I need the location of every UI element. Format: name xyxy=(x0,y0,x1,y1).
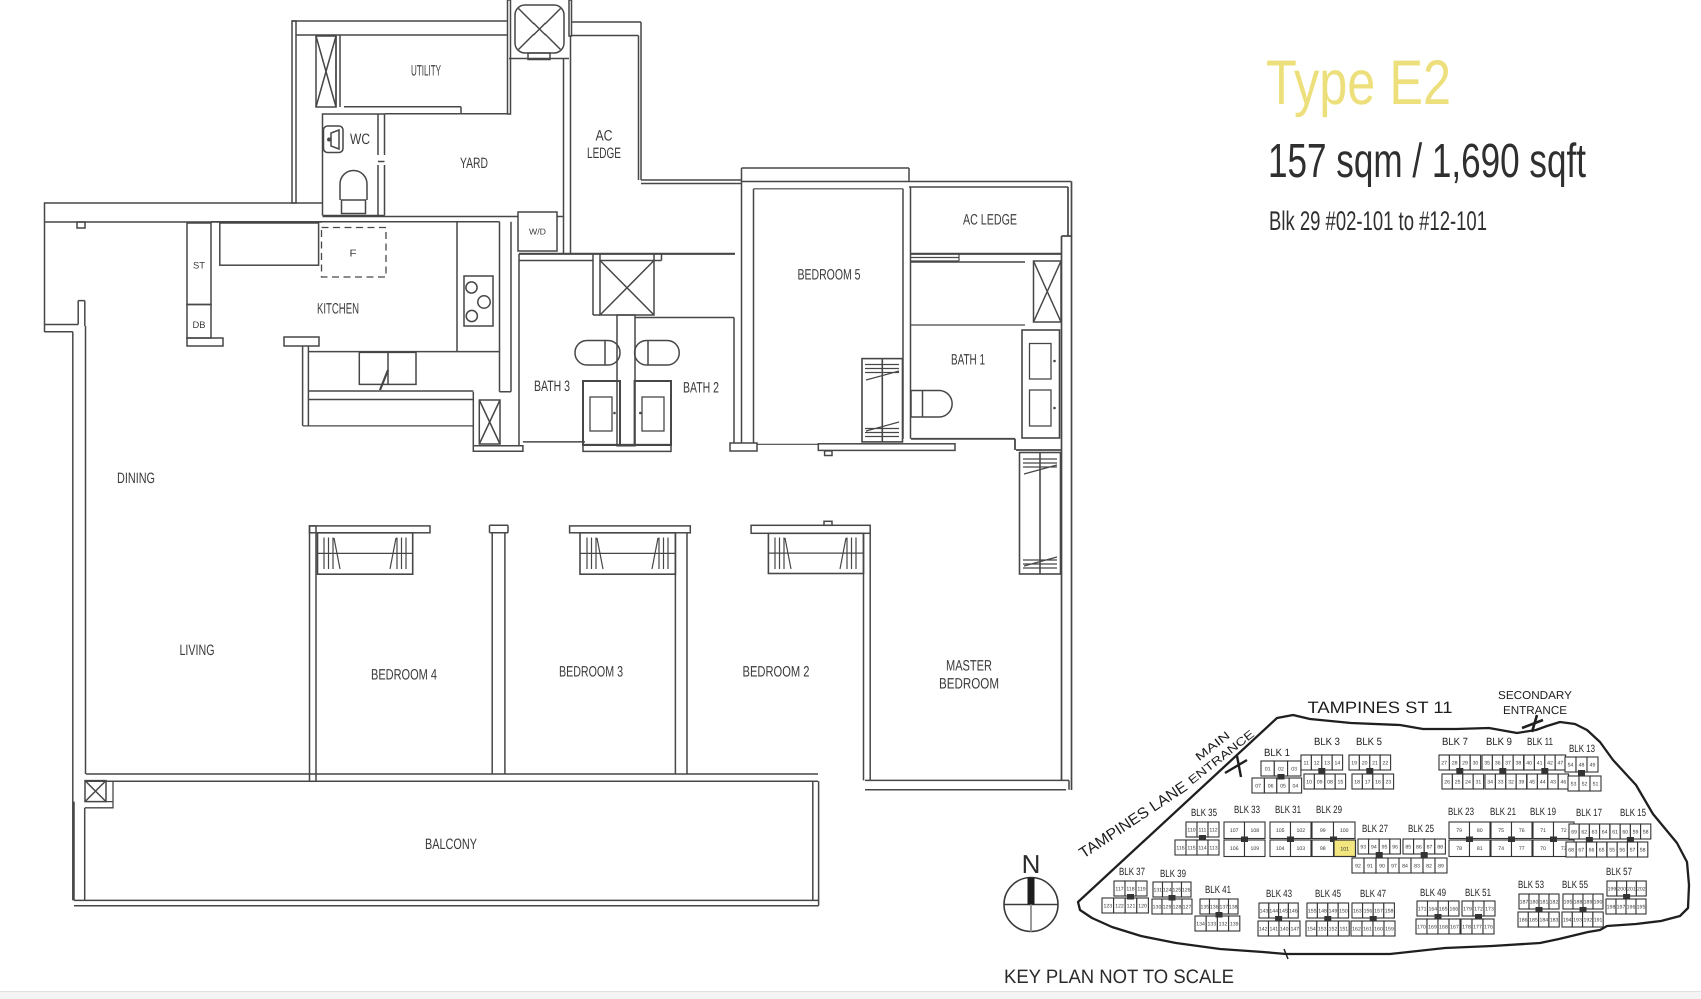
svg-text:176: 176 xyxy=(1484,925,1493,931)
svg-text:22: 22 xyxy=(1383,761,1389,767)
svg-text:182: 182 xyxy=(1550,900,1559,906)
svg-text:BLK 21: BLK 21 xyxy=(1490,806,1516,818)
svg-text:10: 10 xyxy=(1306,780,1312,786)
svg-text:158: 158 xyxy=(1385,909,1394,915)
svg-text:146: 146 xyxy=(1289,909,1298,915)
svg-text:28: 28 xyxy=(1452,761,1458,767)
svg-text:156: 156 xyxy=(1364,909,1373,915)
svg-text:148: 148 xyxy=(1318,909,1327,915)
svg-text:81: 81 xyxy=(1477,846,1483,852)
svg-text:BLK 1: BLK 1 xyxy=(1264,747,1290,759)
svg-text:08: 08 xyxy=(1327,780,1333,786)
svg-text:12: 12 xyxy=(1314,761,1320,767)
svg-text:183: 183 xyxy=(1550,918,1559,924)
svg-text:45: 45 xyxy=(1529,780,1535,786)
svg-text:133: 133 xyxy=(1207,922,1216,928)
svg-text:26: 26 xyxy=(1444,780,1450,786)
svg-text:BATH 3: BATH 3 xyxy=(534,378,570,395)
svg-text:58: 58 xyxy=(1640,848,1646,854)
svg-text:103: 103 xyxy=(1296,846,1305,852)
svg-text:161: 161 xyxy=(1363,927,1372,933)
svg-text:BLK 17: BLK 17 xyxy=(1576,807,1602,819)
svg-text:68: 68 xyxy=(1568,848,1574,854)
svg-text:BLK 5: BLK 5 xyxy=(1356,736,1382,748)
svg-text:BLK 25: BLK 25 xyxy=(1408,823,1434,835)
svg-text:40: 40 xyxy=(1526,761,1532,767)
svg-text:BEDROOM 5: BEDROOM 5 xyxy=(798,267,861,284)
svg-text:78: 78 xyxy=(1456,846,1462,852)
svg-text:19: 19 xyxy=(1351,761,1357,767)
svg-text:74: 74 xyxy=(1498,846,1504,852)
svg-text:61: 61 xyxy=(1612,830,1618,836)
svg-text:110: 110 xyxy=(1187,828,1195,834)
svg-text:KITCHEN: KITCHEN xyxy=(317,301,359,318)
svg-text:115: 115 xyxy=(1187,846,1195,852)
svg-text:65: 65 xyxy=(1599,848,1605,854)
svg-text:185: 185 xyxy=(1529,918,1538,924)
svg-text:193: 193 xyxy=(1573,918,1582,924)
svg-text:90: 90 xyxy=(1379,864,1385,870)
svg-text:BLK 7: BLK 7 xyxy=(1442,736,1468,748)
svg-text:BLK 55: BLK 55 xyxy=(1562,879,1588,891)
svg-text:96: 96 xyxy=(1392,845,1398,851)
svg-text:ST: ST xyxy=(193,261,205,272)
svg-text:15: 15 xyxy=(1338,780,1344,786)
svg-text:151: 151 xyxy=(1339,927,1348,933)
svg-text:87: 87 xyxy=(1427,845,1433,851)
svg-text:142: 142 xyxy=(1259,927,1268,933)
svg-text:21: 21 xyxy=(1372,761,1378,767)
svg-text:129: 129 xyxy=(1163,905,1172,911)
svg-text:195: 195 xyxy=(1637,905,1646,911)
svg-text:03: 03 xyxy=(1291,767,1297,773)
svg-text:LIVING: LIVING xyxy=(180,642,215,659)
svg-text:178: 178 xyxy=(1462,925,1471,931)
svg-text:UTILITY: UTILITY xyxy=(411,63,441,80)
svg-text:139: 139 xyxy=(1230,922,1239,928)
svg-text:47: 47 xyxy=(1558,761,1564,767)
svg-text:86: 86 xyxy=(1416,845,1422,851)
svg-text:BLK 37: BLK 37 xyxy=(1119,866,1145,878)
svg-text:118: 118 xyxy=(1126,887,1134,893)
svg-text:63: 63 xyxy=(1592,830,1598,836)
svg-text:141: 141 xyxy=(1269,927,1278,933)
svg-text:44: 44 xyxy=(1540,780,1546,786)
svg-text:100: 100 xyxy=(1340,828,1349,834)
svg-text:170: 170 xyxy=(1417,925,1426,931)
svg-text:24: 24 xyxy=(1465,780,1471,786)
svg-text:140: 140 xyxy=(1280,927,1289,933)
svg-text:75: 75 xyxy=(1498,828,1504,834)
svg-text:117: 117 xyxy=(1115,887,1123,893)
svg-text:92: 92 xyxy=(1355,864,1361,870)
svg-text:DINING: DINING xyxy=(117,470,155,487)
svg-text:177: 177 xyxy=(1473,925,1482,931)
svg-text:W/D: W/D xyxy=(529,227,546,237)
svg-text:95: 95 xyxy=(1382,845,1388,851)
svg-text:189: 189 xyxy=(1584,900,1593,906)
svg-text:Type E2: Type E2 xyxy=(1266,48,1451,118)
svg-text:134: 134 xyxy=(1196,922,1205,928)
svg-text:190: 190 xyxy=(1594,900,1603,906)
svg-text:36: 36 xyxy=(1495,761,1501,767)
svg-text:200: 200 xyxy=(1617,887,1626,893)
svg-text:BEDROOM 3: BEDROOM 3 xyxy=(559,664,623,681)
svg-text:BLK 9: BLK 9 xyxy=(1486,736,1512,748)
svg-text:137: 137 xyxy=(1219,905,1228,911)
svg-text:57: 57 xyxy=(1630,848,1636,854)
svg-text:DB: DB xyxy=(193,320,206,331)
svg-text:114: 114 xyxy=(1198,846,1206,852)
svg-text:BLK 49: BLK 49 xyxy=(1420,887,1446,899)
svg-text:04: 04 xyxy=(1293,784,1299,790)
svg-text:160: 160 xyxy=(1374,927,1383,933)
svg-text:62: 62 xyxy=(1581,830,1587,836)
svg-text:52: 52 xyxy=(1582,782,1588,788)
svg-text:79: 79 xyxy=(1456,828,1462,834)
svg-text:BALCONY: BALCONY xyxy=(425,836,477,853)
svg-text:143: 143 xyxy=(1260,909,1269,915)
svg-text:128: 128 xyxy=(1173,905,1182,911)
svg-text:119: 119 xyxy=(1137,887,1145,893)
svg-text:18: 18 xyxy=(1354,780,1360,786)
svg-text:69: 69 xyxy=(1571,830,1577,836)
svg-text:BLK 51: BLK 51 xyxy=(1465,887,1491,899)
svg-text:93: 93 xyxy=(1360,845,1366,851)
svg-text:202: 202 xyxy=(1637,887,1646,893)
svg-text:173: 173 xyxy=(1485,907,1494,913)
svg-text:150: 150 xyxy=(1339,909,1348,915)
svg-text:AC: AC xyxy=(596,128,613,145)
svg-text:157 sqm / 1,690 sqft: 157 sqm / 1,690 sqft xyxy=(1268,135,1586,188)
svg-text:29: 29 xyxy=(1462,761,1468,767)
svg-text:23: 23 xyxy=(1386,780,1392,786)
svg-text:WC: WC xyxy=(350,131,370,148)
svg-text:N: N xyxy=(1022,849,1041,879)
svg-text:83: 83 xyxy=(1414,864,1420,870)
svg-text:BLK 11: BLK 11 xyxy=(1527,736,1553,748)
svg-text:BEDROOM 2: BEDROOM 2 xyxy=(743,664,810,681)
svg-text:37: 37 xyxy=(1505,761,1511,767)
svg-text:27: 27 xyxy=(1441,761,1447,767)
svg-text:168: 168 xyxy=(1439,925,1448,931)
svg-text:46: 46 xyxy=(1561,780,1567,786)
svg-text:32: 32 xyxy=(1508,780,1514,786)
svg-text:MASTER: MASTER xyxy=(946,658,992,675)
svg-text:157: 157 xyxy=(1374,909,1383,915)
svg-text:102: 102 xyxy=(1296,828,1305,834)
svg-text:55: 55 xyxy=(1609,848,1615,854)
svg-text:14: 14 xyxy=(1335,761,1341,767)
svg-text:116: 116 xyxy=(1176,846,1184,852)
svg-text:191: 191 xyxy=(1594,918,1603,924)
svg-text:187: 187 xyxy=(1520,900,1529,906)
svg-text:11: 11 xyxy=(1304,761,1309,767)
svg-text:BLK 27: BLK 27 xyxy=(1362,823,1388,835)
svg-text:180: 180 xyxy=(1530,900,1539,906)
svg-text:106: 106 xyxy=(1230,846,1239,852)
svg-text:149: 149 xyxy=(1329,909,1338,915)
svg-text:35: 35 xyxy=(1484,761,1490,767)
svg-text:123: 123 xyxy=(1103,904,1112,910)
svg-text:144: 144 xyxy=(1269,909,1278,915)
svg-text:39: 39 xyxy=(1519,780,1525,786)
svg-text:64: 64 xyxy=(1602,830,1608,836)
svg-text:138: 138 xyxy=(1229,905,1238,911)
svg-text:105: 105 xyxy=(1276,828,1285,834)
svg-text:BLK 39: BLK 39 xyxy=(1160,868,1186,880)
svg-text:130: 130 xyxy=(1153,905,1162,911)
svg-text:BLK 35: BLK 35 xyxy=(1191,807,1217,819)
svg-text:132: 132 xyxy=(1219,922,1228,928)
svg-text:30: 30 xyxy=(1473,761,1479,767)
svg-text:198: 198 xyxy=(1607,905,1616,911)
svg-text:42: 42 xyxy=(1547,761,1553,767)
svg-text:145: 145 xyxy=(1279,909,1288,915)
svg-text:166: 166 xyxy=(1449,907,1458,913)
svg-text:25: 25 xyxy=(1455,780,1461,786)
svg-text:94: 94 xyxy=(1371,845,1377,851)
svg-text:82: 82 xyxy=(1426,864,1432,870)
svg-text:53: 53 xyxy=(1571,782,1577,788)
svg-text:TAMPINES ST 11: TAMPINES ST 11 xyxy=(1308,699,1453,717)
svg-text:111: 111 xyxy=(1199,828,1207,834)
svg-text:38: 38 xyxy=(1516,761,1522,767)
svg-text:113: 113 xyxy=(1209,846,1217,852)
svg-text:60: 60 xyxy=(1622,830,1628,836)
svg-text:ENTRANCE: ENTRANCE xyxy=(1503,705,1567,717)
svg-text:BLK 23: BLK 23 xyxy=(1448,806,1474,818)
svg-text:154: 154 xyxy=(1307,927,1316,933)
svg-text:112: 112 xyxy=(1209,828,1217,834)
svg-text:131: 131 xyxy=(1153,888,1162,894)
svg-text:LEDGE: LEDGE xyxy=(587,145,621,162)
svg-text:BLK 13: BLK 13 xyxy=(1569,743,1595,755)
svg-text:89: 89 xyxy=(1438,864,1444,870)
svg-text:BLK 57: BLK 57 xyxy=(1606,866,1632,878)
svg-text:BLK 15: BLK 15 xyxy=(1620,807,1646,819)
svg-text:84: 84 xyxy=(1402,864,1408,870)
svg-text:BLK 41: BLK 41 xyxy=(1205,884,1231,896)
svg-text:BEDROOM: BEDROOM xyxy=(939,676,999,693)
svg-text:179: 179 xyxy=(1463,907,1472,913)
svg-text:126: 126 xyxy=(1182,888,1191,894)
svg-text:13: 13 xyxy=(1324,761,1330,767)
svg-text:67: 67 xyxy=(1578,848,1584,854)
svg-text:YARD: YARD xyxy=(460,155,488,172)
svg-text:196: 196 xyxy=(1627,905,1636,911)
svg-text:17: 17 xyxy=(1365,780,1371,786)
svg-text:120: 120 xyxy=(1138,904,1147,910)
svg-text:122: 122 xyxy=(1115,904,1124,910)
svg-text:136: 136 xyxy=(1210,905,1219,911)
svg-text:164: 164 xyxy=(1428,907,1437,913)
svg-text:127: 127 xyxy=(1183,905,1192,911)
svg-text:Blk 29 #02-101 to #12-101: Blk 29 #02-101 to #12-101 xyxy=(1269,206,1487,236)
svg-text:BATH 2: BATH 2 xyxy=(683,380,719,397)
svg-text:09: 09 xyxy=(1317,780,1323,786)
svg-text:153: 153 xyxy=(1318,927,1327,933)
svg-text:109: 109 xyxy=(1250,846,1259,852)
svg-text:43: 43 xyxy=(1550,780,1556,786)
svg-text:06: 06 xyxy=(1268,784,1274,790)
svg-text:70: 70 xyxy=(1540,846,1546,852)
svg-text:199: 199 xyxy=(1608,887,1617,893)
svg-text:192: 192 xyxy=(1583,918,1592,924)
svg-text:BLK 45: BLK 45 xyxy=(1315,888,1341,900)
svg-text:49: 49 xyxy=(1590,763,1596,769)
svg-text:171: 171 xyxy=(1418,907,1427,913)
svg-text:AC LEDGE: AC LEDGE xyxy=(963,212,1017,229)
svg-text:85: 85 xyxy=(1405,845,1411,851)
svg-text:72: 72 xyxy=(1561,828,1567,834)
svg-text:186: 186 xyxy=(1519,918,1528,924)
svg-text:02: 02 xyxy=(1278,767,1284,773)
svg-text:188: 188 xyxy=(1574,900,1583,906)
svg-text:BLK 31: BLK 31 xyxy=(1275,804,1301,816)
svg-text:163: 163 xyxy=(1353,909,1362,915)
svg-text:152: 152 xyxy=(1329,927,1338,933)
svg-text:BLK 53: BLK 53 xyxy=(1518,879,1544,891)
svg-text:48: 48 xyxy=(1579,763,1585,769)
svg-text:66: 66 xyxy=(1589,848,1595,854)
svg-text:BEDROOM 4: BEDROOM 4 xyxy=(371,667,437,684)
svg-text:51: 51 xyxy=(1593,782,1599,788)
svg-text:05: 05 xyxy=(1280,784,1286,790)
svg-text:124: 124 xyxy=(1163,888,1172,894)
svg-text:167: 167 xyxy=(1450,925,1459,931)
svg-text:07: 07 xyxy=(1255,784,1261,790)
svg-text:F: F xyxy=(350,249,357,260)
svg-text:SECONDARY: SECONDARY xyxy=(1498,690,1572,702)
svg-text:98: 98 xyxy=(1320,846,1326,852)
svg-text:181: 181 xyxy=(1540,900,1549,906)
svg-text:88: 88 xyxy=(1437,845,1443,851)
svg-text:BLK 29: BLK 29 xyxy=(1316,804,1342,816)
svg-text:121: 121 xyxy=(1127,904,1136,910)
svg-text:165: 165 xyxy=(1439,907,1448,913)
svg-text:76: 76 xyxy=(1519,828,1525,834)
svg-text:59: 59 xyxy=(1633,830,1639,836)
svg-text:169: 169 xyxy=(1428,925,1437,931)
svg-text:16: 16 xyxy=(1375,780,1381,786)
svg-text:101: 101 xyxy=(1340,847,1349,853)
svg-text:201: 201 xyxy=(1627,887,1636,893)
svg-text:108: 108 xyxy=(1250,828,1259,834)
svg-text:41: 41 xyxy=(1537,761,1543,767)
svg-text:99: 99 xyxy=(1320,828,1326,834)
svg-text:34: 34 xyxy=(1487,780,1493,786)
svg-text:155: 155 xyxy=(1308,909,1317,915)
svg-text:194: 194 xyxy=(1563,918,1572,924)
svg-text:162: 162 xyxy=(1352,927,1361,933)
svg-text:147: 147 xyxy=(1290,927,1299,933)
svg-text:91: 91 xyxy=(1367,864,1373,870)
svg-text:BLK 43: BLK 43 xyxy=(1266,888,1292,900)
svg-text:BLK 19: BLK 19 xyxy=(1530,806,1556,818)
svg-text:80: 80 xyxy=(1477,828,1483,834)
svg-text:195: 195 xyxy=(1564,900,1573,906)
svg-text:97: 97 xyxy=(1391,864,1397,870)
svg-text:172: 172 xyxy=(1474,907,1483,913)
svg-text:71: 71 xyxy=(1540,828,1546,834)
svg-text:KEY PLAN NOT TO SCALE: KEY PLAN NOT TO SCALE xyxy=(1004,966,1234,988)
svg-text:184: 184 xyxy=(1539,918,1548,924)
svg-text:58: 58 xyxy=(1643,830,1649,836)
svg-text:159: 159 xyxy=(1385,927,1394,933)
svg-text:BATH 1: BATH 1 xyxy=(951,352,985,369)
svg-text:135: 135 xyxy=(1200,905,1209,911)
svg-text:104: 104 xyxy=(1276,846,1285,852)
svg-text:BLK 3: BLK 3 xyxy=(1314,736,1340,748)
svg-text:BLK 33: BLK 33 xyxy=(1234,804,1260,816)
svg-text:20: 20 xyxy=(1362,761,1368,767)
svg-text:197: 197 xyxy=(1617,905,1626,911)
svg-text:33: 33 xyxy=(1498,780,1504,786)
svg-text:77: 77 xyxy=(1519,846,1525,852)
svg-text:01: 01 xyxy=(1265,767,1271,773)
svg-text:BLK 47: BLK 47 xyxy=(1360,888,1386,900)
svg-text:31: 31 xyxy=(1476,780,1482,786)
svg-text:107: 107 xyxy=(1230,828,1239,834)
svg-text:54: 54 xyxy=(1568,763,1574,769)
svg-text:56: 56 xyxy=(1619,848,1625,854)
svg-text:125: 125 xyxy=(1172,888,1181,894)
